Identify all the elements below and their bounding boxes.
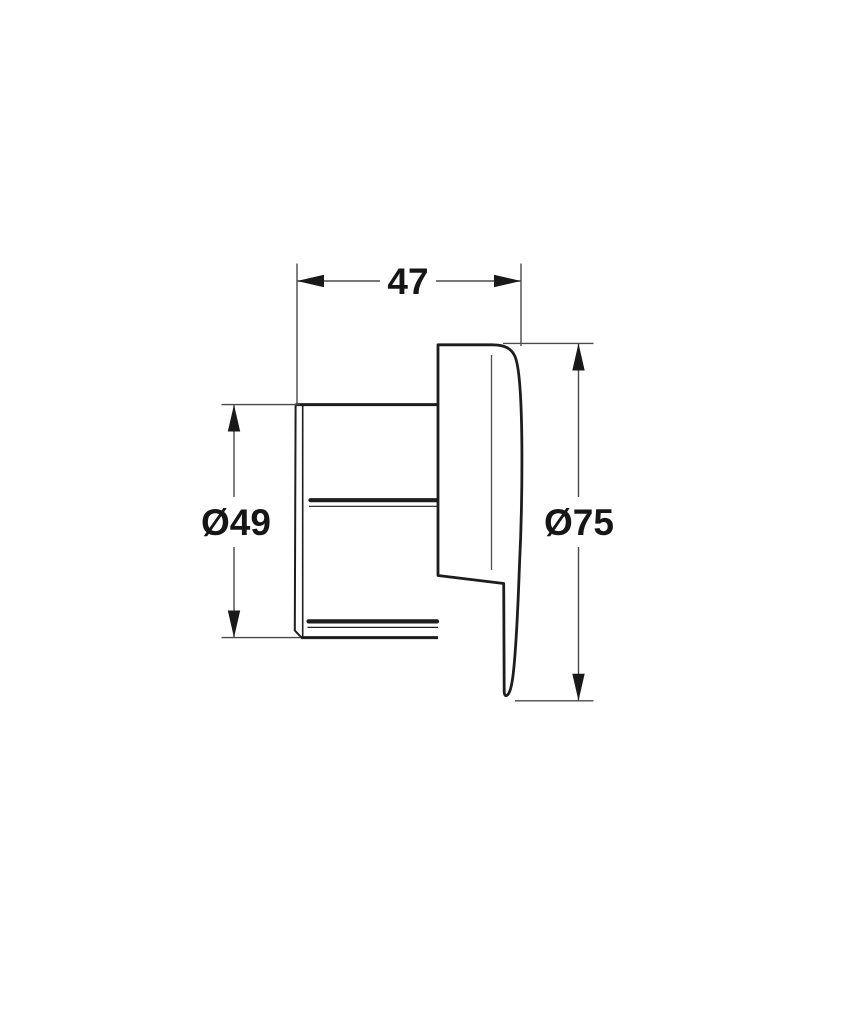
dim-width-label: 47 bbox=[387, 261, 428, 302]
dim-faceplate-diameter-arrow-bottom bbox=[572, 674, 584, 701]
dim-body-diameter: Ø49 bbox=[201, 405, 301, 638]
dim-body-diameter-arrow-bottom bbox=[228, 611, 240, 638]
escutcheon-handle bbox=[438, 345, 522, 696]
dim-width: 47 bbox=[297, 261, 521, 404]
product-drawing-page: 47 Ø49 Ø75 bbox=[0, 0, 852, 1024]
valve-body bbox=[295, 405, 438, 638]
valve-body-back-edge bbox=[295, 405, 302, 637]
dim-body-diameter-label: Ø49 bbox=[201, 502, 271, 543]
dim-faceplate-diameter-arrow-top bbox=[572, 343, 584, 370]
dim-width-arrow-right bbox=[494, 275, 521, 287]
dim-width-arrow-left bbox=[297, 275, 324, 287]
technical-drawing: 47 Ø49 Ø75 bbox=[0, 0, 852, 1024]
dim-body-diameter-arrow-top bbox=[228, 405, 240, 432]
dim-faceplate-diameter-label: Ø75 bbox=[544, 502, 614, 543]
escutcheon-outline bbox=[438, 345, 522, 696]
